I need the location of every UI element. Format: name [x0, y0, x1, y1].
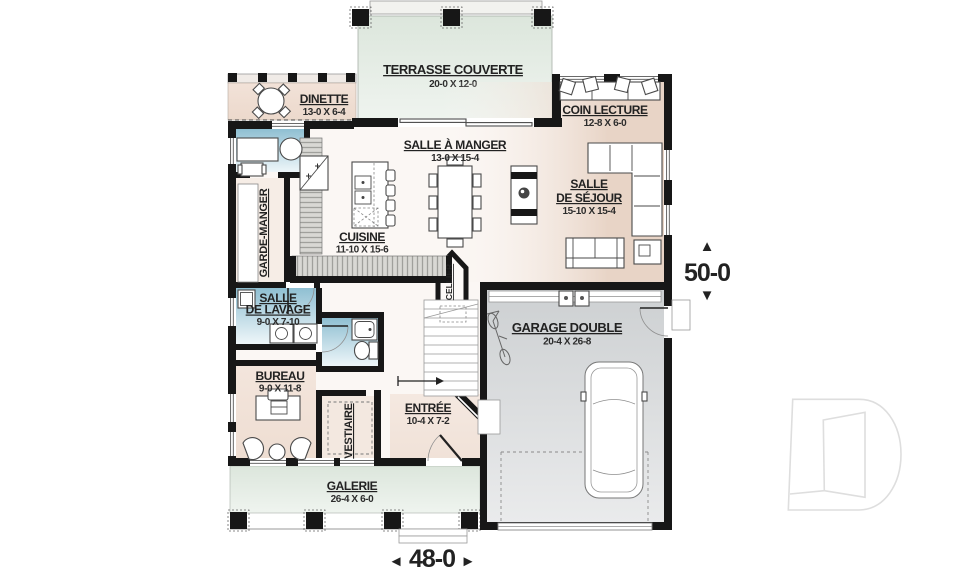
room-name-bureau: BUREAU	[256, 369, 305, 383]
kitchen-island	[352, 162, 395, 228]
room-dims-cuisine: 11-10 X 15-6	[336, 245, 389, 256]
room-dims-garage: 20-4 X 26-8	[543, 337, 592, 348]
room-name-dinette: DINETTE	[300, 92, 349, 106]
room-dims-bureau: 9-0 X 11-8	[259, 384, 302, 395]
room-dims-entree: 10-4 X 7-2	[407, 416, 451, 427]
bathtub	[352, 319, 377, 340]
dining-table	[438, 166, 472, 238]
label-galerie: GALERIE 26-4 X 6-0	[327, 479, 378, 505]
room-dims-manger: 13-0 X 15-4	[431, 153, 480, 164]
arrow-right-icon: ►	[461, 553, 476, 569]
entree: ENTRÉE 10-4 X 7-2	[405, 400, 452, 427]
room-name-terrasse: TERRASSE COUVERTE	[383, 62, 524, 77]
galerie-porch: GALERIE 26-4 X 6-0	[228, 466, 480, 543]
room-name-cuisine: CUISINE	[339, 230, 385, 244]
room-dims-galerie: 26-4 X 6-0	[331, 494, 375, 505]
room-name-galerie: GALERIE	[327, 479, 378, 493]
drummond-logo-watermark	[788, 399, 901, 510]
arrow-down-icon: ▼	[700, 287, 715, 304]
label-cuisine: CUISINE 11-10 X 15-6	[336, 230, 389, 256]
room-name-garde-manger: GARDE-MANGER	[258, 188, 270, 277]
floor-plan: TERRASSE COUVERTE 20-0 X 12-0 DINETTE 13…	[0, 0, 960, 569]
arrow-up-icon: ▲	[700, 238, 715, 255]
room-dims-sejour: 15-10 X 15-4	[562, 206, 616, 217]
arrow-left-icon: ◄	[389, 553, 404, 569]
dinette-porch: DINETTE 13-0 X 6-4	[228, 73, 356, 120]
room-dims-dinette: 13-0 X 6-4	[303, 107, 347, 118]
fireplace	[511, 166, 537, 224]
side-door-landing	[672, 300, 690, 330]
car	[581, 362, 647, 498]
label-dinette: DINETTE 13-0 X 6-4	[300, 92, 349, 118]
overall-depth-dimension: ▲ 50-0 ▼	[684, 238, 730, 304]
label-bureau: BUREAU 9-0 X 11-8	[256, 369, 305, 395]
side-table	[634, 240, 661, 264]
room-dims-coin-lecture: 12-8 X 6-0	[584, 118, 628, 129]
peninsula-counter	[292, 256, 448, 278]
loveseat	[566, 238, 624, 268]
pantry-shelves	[238, 184, 258, 282]
front-steps	[399, 529, 467, 543]
garde-manger: GARDE-MANGER	[238, 184, 270, 282]
toilet	[355, 342, 379, 360]
room-name-cellier: CELLIER	[444, 264, 454, 300]
overall-depth-value: 50-0	[684, 259, 730, 287]
overall-width-dimension: ◄ 48-0 ►	[389, 545, 476, 569]
counter-left	[300, 138, 322, 254]
room-name-manger: SALLE À MANGER	[404, 137, 507, 152]
garage-entry-landing	[478, 400, 500, 434]
room-name-garage: GARAGE DOUBLE	[512, 320, 623, 335]
overall-width-value: 48-0	[409, 545, 455, 569]
room-dims-lavage: 9-0 X 7-10	[257, 317, 301, 328]
room-name-sejour-2: DE SÉJOUR	[556, 190, 622, 205]
room-name-vestiaire: VESTIAIRE	[343, 403, 355, 458]
room-name-coin-lecture: COIN LECTURE	[562, 103, 648, 117]
room-name-sejour-1: SALLE	[570, 177, 608, 191]
room-name-entree: ENTRÉE	[405, 400, 452, 415]
bathroom	[352, 319, 378, 360]
room-name-lavage-2: DE LAVAGE	[246, 303, 311, 317]
